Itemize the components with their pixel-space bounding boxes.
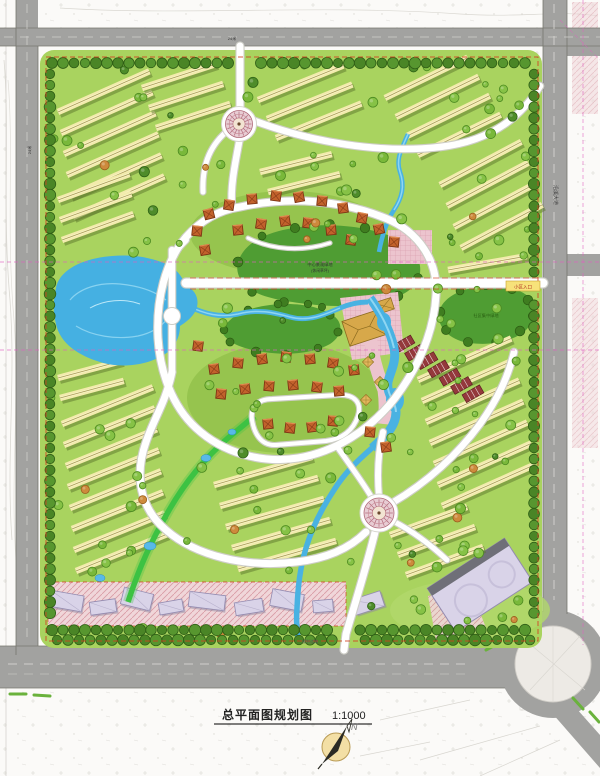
border-tree	[354, 57, 365, 68]
border-tree	[45, 421, 55, 431]
tree	[350, 161, 356, 167]
border-tree	[432, 625, 442, 635]
border-tree	[250, 635, 259, 644]
tree	[449, 240, 455, 246]
tree	[217, 160, 225, 168]
border-tree	[189, 57, 200, 68]
pond	[95, 575, 105, 582]
villa-building	[293, 191, 304, 202]
tree	[311, 162, 319, 170]
tree	[349, 235, 357, 243]
border-tree	[239, 635, 249, 645]
tree	[520, 252, 527, 259]
tree	[197, 462, 207, 472]
tree	[493, 334, 503, 344]
tree	[205, 381, 214, 390]
border-tree	[459, 635, 470, 646]
tree	[508, 112, 517, 121]
tree	[428, 402, 436, 410]
border-tree	[497, 624, 508, 635]
border-tree	[529, 168, 539, 178]
tree	[453, 466, 459, 472]
border-tree	[454, 58, 464, 68]
tree	[368, 602, 375, 609]
tree	[233, 388, 239, 394]
villa-building	[317, 196, 328, 207]
border-tree	[200, 624, 211, 635]
border-tree	[146, 625, 157, 636]
border-tree	[487, 58, 497, 68]
villa-building	[257, 354, 268, 365]
border-tree	[45, 157, 54, 166]
drawing-title: 总平面图规划图	[222, 707, 313, 722]
border-tree	[124, 625, 134, 635]
east-lawn-label: 社区集中绿地	[473, 312, 499, 319]
fringe-tree	[274, 300, 282, 308]
border-tree	[399, 625, 408, 634]
border-tree	[529, 542, 539, 552]
border-tree	[90, 57, 101, 68]
border-tree	[480, 634, 492, 646]
tree	[203, 164, 209, 170]
border-tree	[360, 635, 370, 645]
tree	[395, 542, 402, 549]
villa-building	[233, 358, 244, 369]
border-tree	[63, 635, 74, 646]
border-tree	[45, 520, 55, 530]
border-tree	[272, 635, 282, 645]
fringe-tree	[258, 232, 266, 240]
border-tree	[45, 113, 55, 123]
border-tree	[113, 625, 122, 634]
border-tree	[498, 58, 508, 68]
tree	[352, 365, 358, 371]
border-tree	[454, 625, 465, 636]
east-branch-road	[567, 254, 600, 276]
tree	[296, 469, 305, 478]
tree	[222, 303, 232, 313]
tree	[324, 221, 330, 227]
border-tree	[529, 377, 539, 387]
border-tree	[283, 635, 293, 645]
tree	[464, 617, 471, 624]
villa-building	[192, 226, 203, 237]
tree	[494, 235, 504, 245]
tree	[474, 286, 480, 292]
border-tree	[107, 635, 118, 646]
tree	[105, 431, 115, 441]
border-tree	[58, 625, 68, 635]
border-tree	[79, 624, 90, 635]
tree	[447, 319, 456, 328]
central-lawn-label: 中心景观绿地	[307, 261, 333, 268]
tree	[140, 94, 147, 101]
border-tree	[69, 58, 79, 68]
border-tree	[168, 625, 179, 636]
tree	[511, 616, 517, 622]
tree	[512, 357, 520, 365]
tree	[450, 93, 459, 102]
border-tree	[45, 531, 55, 541]
border-tree	[278, 625, 287, 634]
border-tree	[102, 58, 113, 69]
border-tree	[96, 635, 106, 645]
border-tree	[277, 57, 288, 68]
villa-building	[264, 381, 274, 391]
villa-building	[199, 244, 210, 255]
border-tree	[45, 355, 55, 365]
bottom-road-note: 规划道路	[302, 638, 318, 644]
border-tree	[223, 625, 234, 636]
tree	[372, 270, 381, 279]
tree	[492, 304, 501, 313]
border-tree	[393, 635, 403, 645]
tree	[311, 219, 319, 227]
border-tree	[333, 58, 342, 67]
master-plan-canvas: 中心景观绿地 (休闲草坪) 社区集中绿地 小区入口 沿溪大道 24米 24米 规…	[0, 0, 600, 776]
tree	[410, 596, 418, 604]
pond	[228, 429, 236, 435]
tree	[432, 562, 442, 572]
tree	[378, 152, 388, 162]
border-tree	[381, 634, 392, 645]
east-road-name: 沿溪大道	[552, 185, 559, 205]
border-tree	[437, 635, 448, 646]
border-tree	[529, 256, 539, 266]
villa-building	[307, 422, 318, 433]
tree	[100, 161, 109, 170]
border-tree	[162, 635, 172, 645]
border-tree	[529, 520, 539, 530]
tree	[502, 458, 509, 465]
tree	[506, 420, 516, 430]
tree	[286, 567, 293, 574]
villa-building	[288, 380, 299, 391]
tree	[311, 152, 317, 158]
tree	[463, 126, 470, 133]
tree	[416, 605, 426, 615]
border-tree	[124, 58, 134, 68]
villa-building	[263, 419, 274, 430]
border-tree	[529, 157, 538, 166]
tree	[143, 237, 150, 244]
border-tree	[529, 443, 539, 453]
border-tree	[443, 625, 454, 636]
border-tree	[45, 586, 55, 596]
tree	[403, 362, 413, 372]
northeast-branch-road	[567, 40, 600, 56]
tree	[409, 551, 416, 558]
border-tree	[157, 58, 167, 68]
tree	[483, 82, 489, 88]
tree	[248, 77, 258, 87]
tree	[238, 448, 248, 458]
border-tree	[387, 624, 398, 635]
tree	[477, 174, 486, 183]
border-tree	[45, 168, 55, 178]
fringe-tree	[314, 344, 322, 352]
border-tree	[299, 624, 310, 635]
left-road-width: 24米	[26, 146, 32, 154]
border-tree	[344, 58, 355, 69]
border-tree	[228, 635, 238, 645]
tree	[139, 496, 147, 504]
border-tree	[409, 57, 421, 69]
tree	[358, 412, 367, 421]
border-tree	[157, 625, 166, 634]
border-tree	[529, 69, 539, 79]
tree	[168, 112, 174, 118]
fringe-tree	[318, 303, 325, 310]
tree	[369, 353, 375, 359]
villa-building	[271, 191, 282, 202]
villa-building	[240, 384, 251, 395]
border-tree	[289, 625, 300, 636]
border-tree	[222, 57, 233, 68]
border-tree	[211, 624, 222, 635]
border-tree	[45, 80, 55, 90]
tree	[78, 142, 84, 148]
border-tree	[366, 58, 376, 68]
tree	[281, 526, 290, 535]
tree	[179, 181, 186, 188]
border-tree	[45, 509, 54, 518]
border-tree	[146, 58, 156, 68]
border-tree	[58, 58, 69, 69]
border-tree	[404, 635, 413, 644]
tree	[498, 613, 507, 622]
tree	[307, 526, 314, 533]
tree	[475, 253, 482, 260]
border-tree	[529, 531, 538, 540]
villa-building	[373, 223, 384, 234]
villa-building	[356, 212, 367, 223]
border-tree	[377, 625, 387, 635]
tree	[265, 432, 273, 440]
tree	[98, 541, 106, 549]
border-tree	[399, 58, 409, 68]
border-tree	[529, 135, 539, 145]
tree	[148, 206, 158, 216]
border-tree	[129, 635, 139, 645]
tree	[331, 428, 339, 436]
border-tree	[476, 58, 486, 68]
border-tree	[421, 58, 431, 68]
border-tree	[415, 635, 425, 645]
tree	[497, 96, 503, 102]
border-tree	[529, 564, 539, 574]
tree	[344, 446, 352, 454]
tree	[88, 567, 97, 576]
border-tree	[529, 201, 539, 211]
border-tree	[448, 635, 459, 646]
plaza-dot	[377, 511, 380, 514]
border-tree	[311, 625, 320, 634]
tree	[455, 503, 465, 513]
tree	[378, 380, 388, 390]
plaza-dot	[237, 122, 240, 125]
fringe-tree	[360, 223, 370, 233]
border-tree	[261, 635, 271, 645]
tree	[474, 548, 484, 558]
border-tree	[45, 399, 55, 409]
border-tree	[514, 635, 523, 644]
border-tree	[311, 58, 321, 68]
tree	[128, 247, 138, 257]
tree	[282, 354, 291, 363]
tree	[81, 485, 89, 493]
border-tree	[300, 58, 311, 69]
tree	[277, 448, 284, 455]
border-tree	[387, 57, 398, 68]
fringe-tree	[290, 223, 299, 232]
border-tree	[255, 57, 266, 68]
shop-building	[313, 599, 336, 615]
border-tree	[135, 58, 145, 68]
border-tree	[355, 625, 365, 635]
border-tree	[168, 58, 179, 69]
right-road	[543, 0, 567, 650]
villa-building	[305, 354, 316, 365]
tree	[499, 85, 507, 93]
border-tree	[321, 624, 332, 635]
fringe-tree	[463, 337, 472, 346]
tree	[326, 473, 336, 483]
border-tree	[45, 245, 55, 255]
tree	[62, 136, 72, 146]
border-tree	[469, 634, 481, 646]
villa-building	[203, 208, 215, 220]
adjacent-plot	[572, 2, 598, 114]
tree	[469, 464, 477, 472]
tree	[485, 104, 495, 114]
border-tree	[212, 58, 222, 68]
tree	[218, 319, 227, 328]
border-tree	[91, 625, 101, 635]
fringe-tree	[515, 326, 525, 336]
border-tree	[45, 212, 54, 221]
border-tree	[529, 586, 539, 596]
tree	[515, 101, 524, 110]
tree	[139, 167, 149, 177]
tree	[469, 213, 476, 220]
border-tree	[529, 344, 539, 354]
tree	[253, 401, 260, 408]
tree	[280, 318, 286, 324]
border-tree	[80, 58, 89, 67]
pond	[144, 542, 156, 550]
border-tree	[150, 634, 162, 646]
tree	[316, 424, 325, 433]
border-tree	[45, 69, 54, 78]
border-tree	[476, 625, 486, 635]
villa-building	[216, 389, 227, 400]
border-tree	[183, 634, 194, 645]
villa-building	[247, 194, 257, 204]
border-tree	[509, 625, 518, 634]
tree	[243, 92, 253, 102]
villa-building	[256, 219, 267, 230]
border-tree	[85, 635, 95, 645]
villa-building	[389, 237, 400, 248]
tree	[436, 535, 443, 542]
border-tree	[503, 635, 512, 644]
border-tree	[255, 624, 266, 635]
border-tree	[529, 465, 538, 474]
tree	[133, 472, 142, 481]
villa-building	[312, 382, 323, 393]
villa-building	[334, 386, 344, 396]
tree	[212, 201, 218, 207]
tree	[453, 513, 462, 522]
border-tree	[410, 625, 420, 635]
tree	[254, 506, 261, 513]
border-tree	[529, 454, 539, 464]
border-tree	[201, 58, 211, 68]
border-tree	[520, 58, 531, 69]
border-tree	[321, 57, 332, 68]
tree	[352, 189, 360, 197]
border-tree	[140, 635, 150, 645]
border-tree	[487, 625, 496, 634]
border-tree	[288, 57, 299, 68]
border-tree	[525, 635, 535, 645]
tree	[437, 316, 444, 323]
tree	[178, 146, 188, 156]
tree	[126, 501, 136, 511]
border-tree	[45, 91, 55, 101]
tree	[458, 546, 468, 556]
villa-building	[280, 216, 291, 227]
tree	[514, 596, 523, 605]
tree	[407, 559, 414, 566]
tree	[433, 284, 442, 293]
border-tree	[45, 300, 55, 310]
border-tree	[519, 624, 530, 635]
tree	[492, 454, 498, 460]
tree	[304, 236, 311, 243]
adjacent-plot	[572, 298, 598, 448]
tree	[230, 525, 238, 533]
border-tree	[267, 58, 277, 68]
tree	[183, 538, 190, 545]
border-tree	[443, 58, 453, 68]
border-tree	[189, 624, 200, 635]
tree	[452, 360, 458, 366]
border-tree	[69, 625, 80, 636]
villa-building	[338, 203, 349, 214]
border-tree	[420, 624, 431, 635]
entrance-label: 小区入口	[514, 284, 532, 291]
tree	[237, 467, 244, 474]
tree	[250, 485, 258, 493]
border-tree	[45, 410, 55, 420]
master-plan-svg: 中心景观绿地 (休闲草坪) 社区集中绿地 小区入口 沿溪大道 24米 24米 规…	[0, 0, 600, 776]
villa-building	[285, 423, 296, 434]
villa-building	[233, 225, 244, 236]
tree	[176, 240, 182, 246]
fringe-tree	[226, 338, 234, 346]
border-tree	[234, 625, 243, 634]
border-tree	[377, 58, 387, 68]
pond	[201, 455, 211, 462]
border-tree	[327, 635, 337, 645]
fringe-tree	[304, 300, 311, 307]
border-tree	[74, 635, 83, 644]
border-tree	[45, 454, 54, 463]
villa-building	[224, 200, 235, 211]
tree	[126, 550, 132, 556]
